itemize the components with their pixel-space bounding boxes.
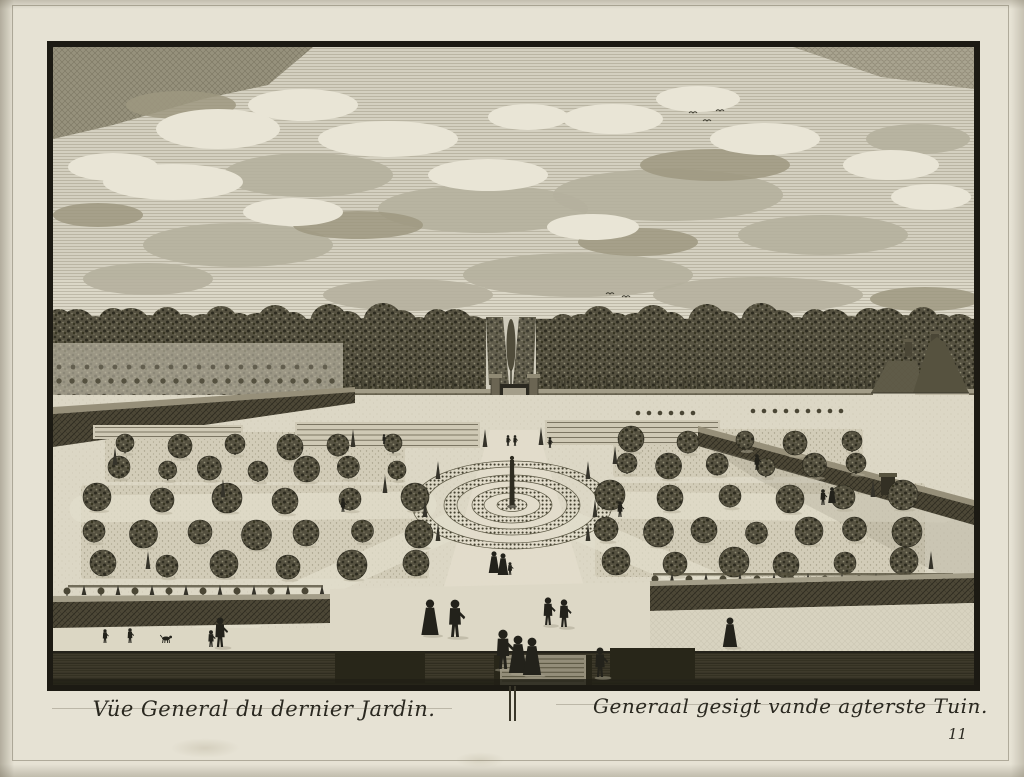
print-paper: Vüe General du dernier Jardin. Generaal … xyxy=(0,0,1024,777)
plate-number: 11 xyxy=(948,725,967,743)
plate-divider-icon xyxy=(508,686,517,721)
caption-french: Vüe General du dernier Jardin. xyxy=(68,697,460,721)
caption-dutch: Generaal gesigt vande agterste Tuin. xyxy=(593,694,977,718)
engraved-garden-scene xyxy=(53,47,974,685)
engraving-frame xyxy=(47,41,980,691)
